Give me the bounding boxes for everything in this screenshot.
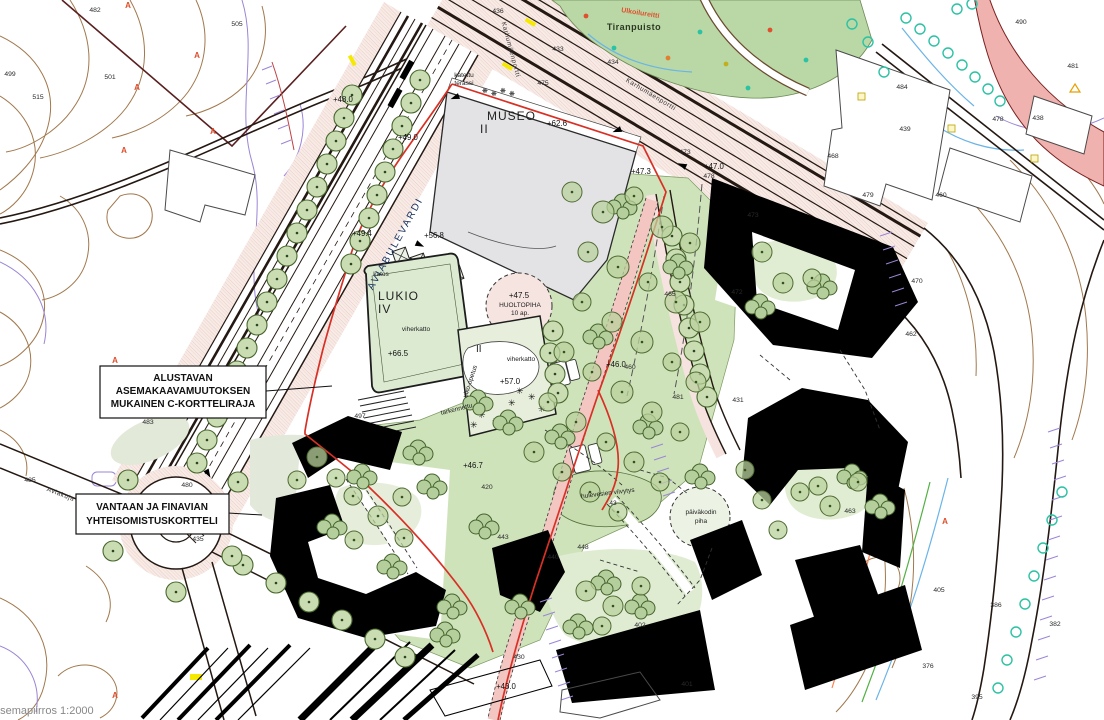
annex-elevation: +57.0 [500, 377, 521, 386]
svg-text:A: A [112, 356, 118, 365]
svg-text:+49.4: +49.4 [352, 229, 372, 238]
yhteisomistus-box [76, 494, 229, 534]
svg-text:462: 462 [905, 331, 917, 338]
svg-text:473: 473 [679, 149, 691, 156]
slope-hatching-left [262, 62, 294, 150]
svg-text:499: 499 [4, 71, 16, 78]
svg-text:A: A [194, 51, 200, 60]
svg-text:376: 376 [922, 663, 934, 670]
yhteisomistus-line2: YHTEISOMISTUSKORTTELI [86, 516, 218, 527]
svg-text:433: 433 [552, 46, 564, 53]
svg-text:478: 478 [992, 116, 1004, 123]
museum-floors: II [480, 122, 489, 136]
svg-text:505: 505 [231, 21, 243, 28]
svg-text:431: 431 [732, 397, 744, 404]
lukio-name: LUKIO [378, 289, 419, 303]
svg-text:490: 490 [1015, 19, 1027, 26]
svg-text:✳: ✳ [516, 386, 524, 396]
svg-text:472: 472 [731, 289, 743, 296]
svg-text:A: A [210, 127, 216, 136]
c-kortteliraja-line2: ASEMAKAAVAMUUTOKSEN [116, 386, 250, 397]
street-label-aviakuja: Aviakuja [46, 486, 76, 503]
svg-text:A: A [121, 146, 127, 155]
huoltopiha-elevation: +47.5 [509, 291, 530, 300]
svg-text:436: 436 [492, 8, 504, 15]
daycare-label-1: päiväkodin [685, 509, 716, 516]
svg-text:386: 386 [990, 602, 1002, 609]
svg-text:497: 497 [354, 413, 366, 420]
svg-text:479: 479 [862, 192, 874, 199]
svg-text:501: 501 [104, 74, 116, 81]
huoltopiha-name: HUOLTOPIHA [499, 302, 541, 309]
svg-text:515: 515 [32, 94, 44, 101]
svg-text:470: 470 [911, 278, 923, 285]
svg-text:+43.0: +43.0 [496, 682, 516, 691]
svg-text:420: 420 [481, 484, 493, 491]
svg-text:A: A [134, 83, 140, 92]
svg-text:❋: ❋ [491, 90, 497, 98]
svg-text:405: 405 [933, 587, 945, 594]
svg-text:480: 480 [181, 482, 193, 489]
park-name: Tiranpuisto [607, 22, 661, 32]
map-canvas: ✳✳✳ ✳✳✳✳ [0, 0, 1104, 720]
lukio-elevation: +66.5 [388, 349, 409, 358]
yhteisomistus-line1: VANTAAN JA FINAVIAN [96, 502, 208, 513]
svg-text:434: 434 [607, 59, 619, 66]
annex-roof: viherkatto [507, 356, 536, 363]
svg-text:+47.3: +47.3 [631, 167, 651, 176]
svg-text:+46.0: +46.0 [606, 360, 626, 369]
svg-text:468: 468 [827, 153, 839, 160]
stormwater-value: 43 [609, 500, 617, 507]
svg-text:430: 430 [513, 654, 525, 661]
svg-text:✳: ✳ [528, 392, 536, 402]
museum-elevation: +62.6 [547, 119, 568, 128]
scale-note: asemapiirros 1:2000 [0, 705, 94, 717]
svg-text:473: 473 [747, 212, 759, 219]
svg-text:482: 482 [89, 7, 101, 14]
svg-text:+49.0: +49.0 [398, 133, 418, 142]
svg-text:440: 440 [547, 554, 559, 561]
svg-text:A: A [125, 1, 131, 10]
svg-text:481: 481 [1067, 63, 1079, 70]
svg-text:460: 460 [624, 364, 636, 371]
svg-text:443: 443 [497, 534, 509, 541]
lukio-roof: viherkatto [402, 326, 431, 333]
svg-text:478: 478 [703, 173, 715, 180]
svg-text:439: 439 [899, 126, 911, 133]
svg-text:463: 463 [844, 508, 856, 515]
svg-text:483: 483 [142, 419, 154, 426]
svg-text:465: 465 [664, 291, 676, 298]
svg-text:484: 484 [896, 84, 908, 91]
svg-text:402: 402 [634, 622, 646, 629]
svg-text:435: 435 [192, 536, 204, 543]
terrace-label-2: terassi [454, 80, 473, 87]
c-kortteliraja-line1: ALUSTAVAN [153, 373, 212, 384]
annex-floors: II [476, 344, 482, 355]
daycare-label-2: piha [695, 518, 708, 525]
museum-name: MUSEO [487, 109, 536, 123]
svg-text:A: A [942, 517, 948, 526]
svg-text:475: 475 [537, 80, 549, 87]
svg-text:481: 481 [672, 394, 684, 401]
svg-text:395: 395 [971, 694, 983, 701]
svg-text:✳: ✳ [508, 398, 516, 408]
svg-text:❋: ❋ [500, 87, 506, 95]
svg-text:❋: ❋ [482, 87, 488, 95]
svg-text:A: A [112, 691, 118, 700]
svg-text:+47.0: +47.0 [704, 162, 724, 171]
svg-text:+46.7: +46.7 [463, 461, 483, 470]
terrace-label-1: katettu [454, 72, 474, 79]
svg-text:+48.0: +48.0 [333, 95, 353, 104]
svg-text:401: 401 [681, 681, 693, 688]
svg-text:485: 485 [24, 477, 36, 484]
site-plan-map: ✳✳✳ ✳✳✳✳ [0, 0, 1104, 720]
svg-text:448: 448 [577, 544, 589, 551]
svg-text:❋: ❋ [509, 90, 515, 98]
huoltopiha-parking: 10 ap. [511, 310, 529, 317]
lukio-floors: IV [378, 302, 391, 316]
c-kortteliraja-line3: MUKAINEN C-KORTTELIRAJA [111, 399, 255, 410]
svg-text:438: 438 [1032, 115, 1044, 122]
svg-text:+56.8: +56.8 [424, 231, 444, 240]
svg-text:460: 460 [935, 192, 947, 199]
warning-triangle [1070, 84, 1080, 92]
svg-text:✳: ✳ [470, 420, 478, 430]
svg-text:382: 382 [1049, 621, 1061, 628]
